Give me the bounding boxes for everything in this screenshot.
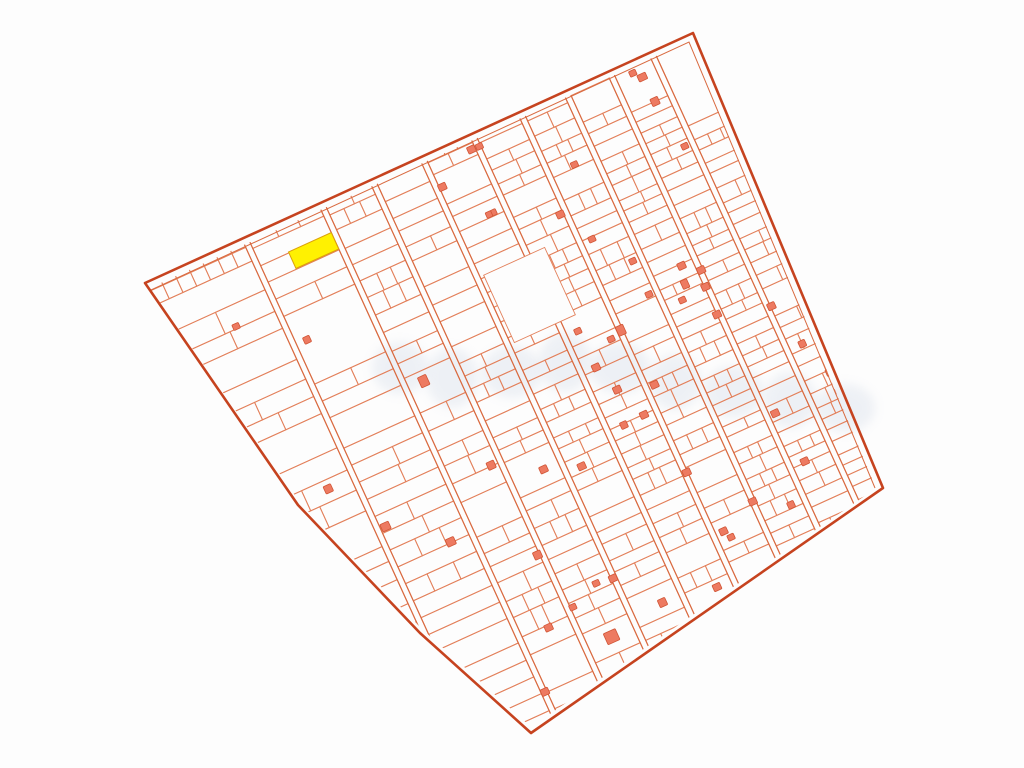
parcel-map[interactable] (0, 0, 1024, 768)
cadastral-map-canvas (0, 0, 1024, 768)
highlighted-parcel[interactable] (289, 233, 339, 269)
